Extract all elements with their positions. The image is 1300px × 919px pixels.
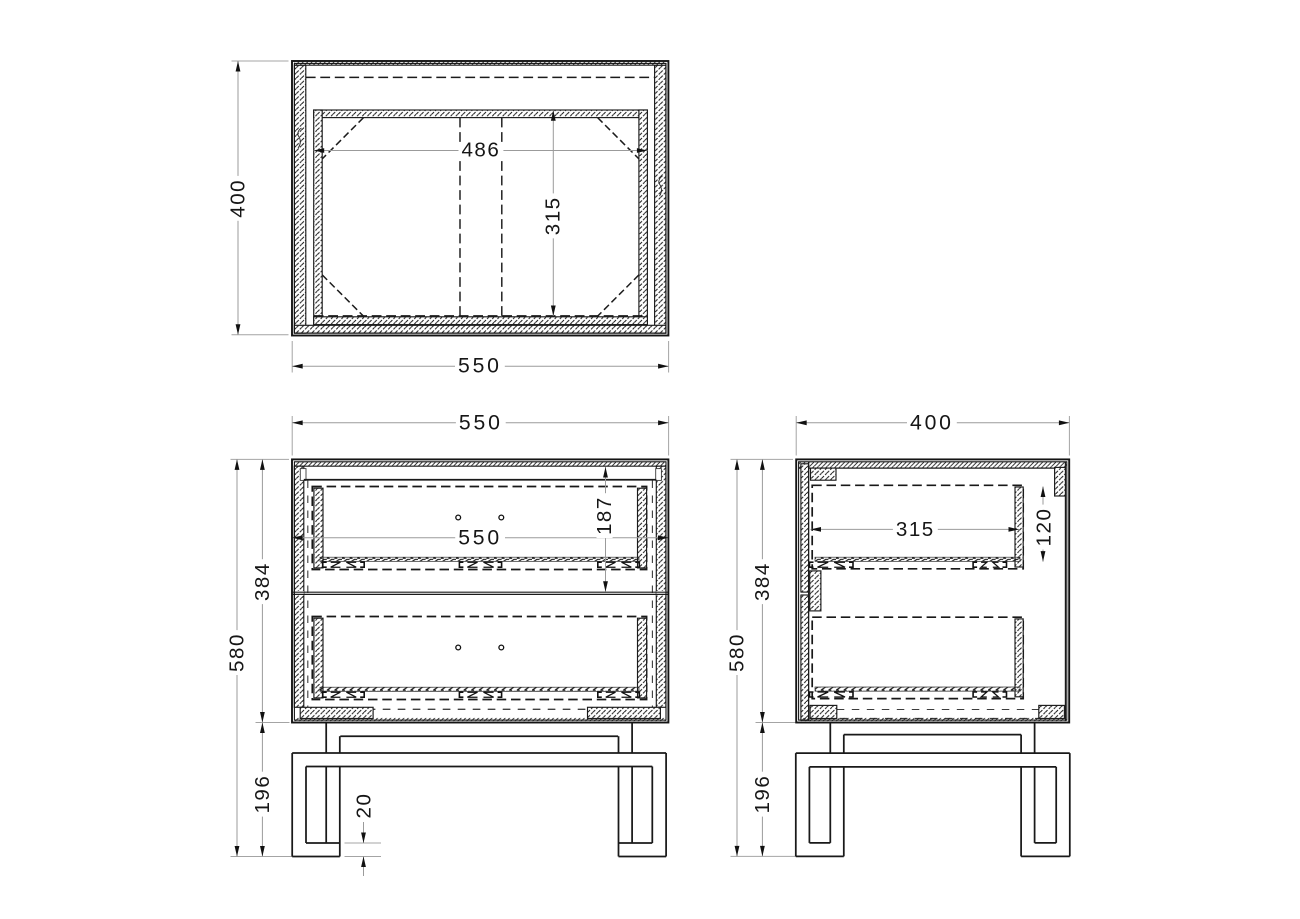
- svg-text:550: 550: [459, 411, 503, 434]
- svg-text:384: 384: [751, 562, 774, 601]
- svg-text:550: 550: [458, 355, 502, 378]
- svg-text:384: 384: [251, 562, 274, 601]
- svg-text:196: 196: [751, 775, 774, 814]
- svg-text:580: 580: [226, 633, 249, 672]
- svg-text:400: 400: [910, 411, 954, 434]
- svg-text:550: 550: [458, 526, 502, 549]
- svg-text:400: 400: [227, 179, 250, 218]
- svg-text:580: 580: [726, 633, 749, 672]
- svg-text:315: 315: [896, 518, 935, 541]
- svg-text:196: 196: [251, 775, 274, 814]
- svg-text:486: 486: [461, 139, 500, 162]
- svg-text:315: 315: [541, 196, 564, 235]
- svg-text:120: 120: [1033, 508, 1056, 547]
- svg-text:20: 20: [352, 793, 375, 819]
- svg-text:187: 187: [593, 496, 616, 535]
